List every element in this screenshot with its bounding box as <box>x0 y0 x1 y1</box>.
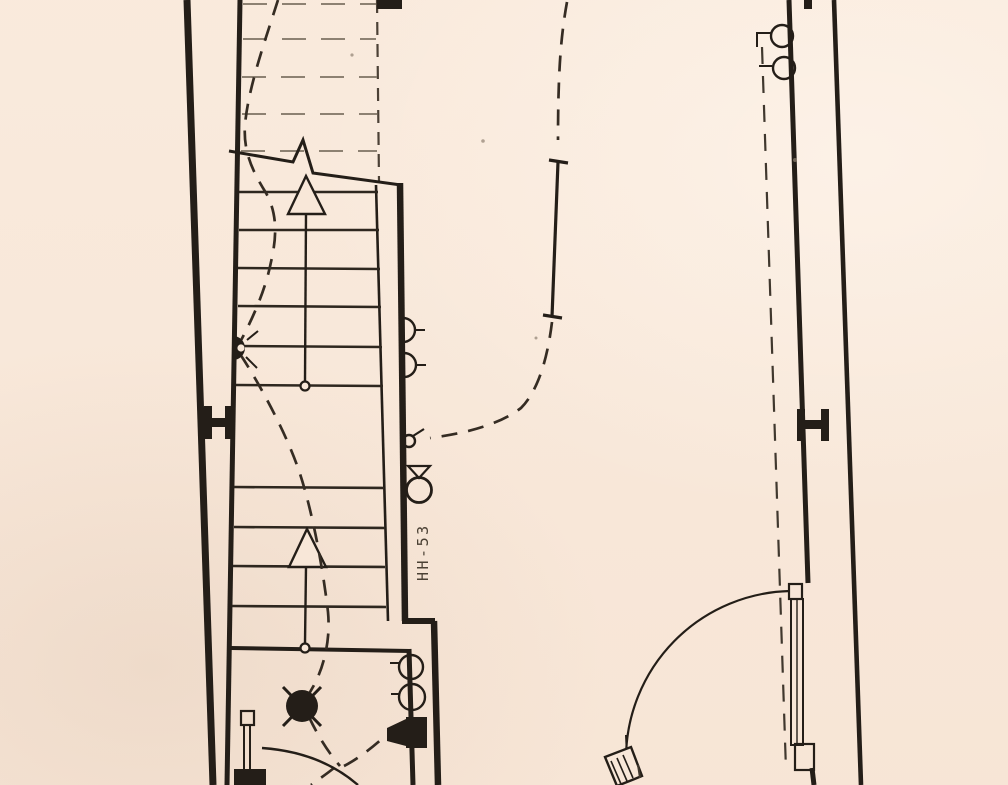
upper-dashed-treads <box>241 4 377 151</box>
conduit-bar <box>552 162 558 317</box>
left-exterior-wall <box>187 0 240 785</box>
ibeam-flange <box>225 406 233 439</box>
door-swing-arc <box>626 591 790 757</box>
wiring-curve-to-junction <box>430 322 552 438</box>
right-wall-right-face <box>834 0 861 785</box>
ibeam-web <box>211 418 226 427</box>
fixture-cone <box>387 719 406 746</box>
door-jamb-poche <box>234 769 266 785</box>
door-stop-body <box>605 747 642 785</box>
conduit-home-run-bar <box>543 160 568 318</box>
door-hinge-bottom <box>795 744 814 770</box>
left-steel-column <box>204 406 233 439</box>
wiring-branch-down <box>311 768 334 785</box>
lower-left-door <box>234 711 358 785</box>
shaft-wall-inner-line <box>376 185 388 621</box>
light-body <box>286 690 318 722</box>
arrow-shaft <box>305 214 306 381</box>
outlet-half-circle <box>404 353 416 377</box>
right-party-wall <box>789 0 861 785</box>
door-swing-arc <box>262 748 358 785</box>
right-steel-column <box>797 409 829 441</box>
wall-cut-cap <box>377 0 402 9</box>
left-inner-wall-line <box>227 0 240 785</box>
outlet-tick <box>757 33 771 47</box>
lower-stair-arrow <box>289 529 326 653</box>
sconce-center <box>237 344 244 351</box>
right-wall-dashed-line <box>762 47 786 770</box>
right-wall-top-tick <box>804 0 812 9</box>
shaft-wall-outer-line <box>400 183 405 621</box>
upper-flight-treads <box>236 192 383 386</box>
right-wall-door <box>605 584 814 785</box>
left-outer-wall-line <box>187 0 213 785</box>
door-jamb-top <box>241 711 254 725</box>
conduit-bottom-cap <box>543 315 562 318</box>
arrow-start-circle <box>301 382 310 391</box>
floor-plan-svg: HH-53 <box>0 0 1008 785</box>
door-hinge-top <box>789 584 802 599</box>
scan-specks <box>350 53 797 339</box>
wall-projector-fixture <box>387 717 427 748</box>
arrow-start-circle <box>301 644 310 653</box>
room-right-outer-wall <box>434 621 438 785</box>
detector-circle <box>407 478 432 503</box>
door-stop-block <box>605 735 642 785</box>
wiring-top-right <box>558 2 567 140</box>
wiring-stair-upper <box>239 0 278 344</box>
landing-floor-line <box>231 648 410 651</box>
wiring-branch-projector <box>344 737 384 766</box>
crossed-ceiling-light <box>283 687 321 726</box>
arrow-head-triangle <box>288 176 325 214</box>
sconce-ray-up <box>247 331 258 340</box>
floor-plan-sheet: HH-53 <box>0 0 1008 785</box>
stair-break-line <box>229 140 401 185</box>
ibeam-flange <box>821 409 829 441</box>
conduit-top-cap <box>549 160 568 163</box>
upper-stair-arrow <box>288 176 325 391</box>
arrow-shaft <box>305 567 306 643</box>
riser-label: HH-53 <box>414 523 432 581</box>
ibeam-web <box>804 420 822 429</box>
wall-above-dashed-line <box>377 0 379 182</box>
shaft-wall-outlets <box>403 318 426 377</box>
right-wall-left-face-upper <box>789 0 808 583</box>
fixture-base <box>406 717 427 748</box>
stair-right-wall <box>376 0 438 785</box>
detector-symbol <box>407 466 432 503</box>
ibeam-flange <box>797 409 805 441</box>
junction-tail <box>413 429 424 436</box>
ibeam-flange <box>204 406 212 439</box>
